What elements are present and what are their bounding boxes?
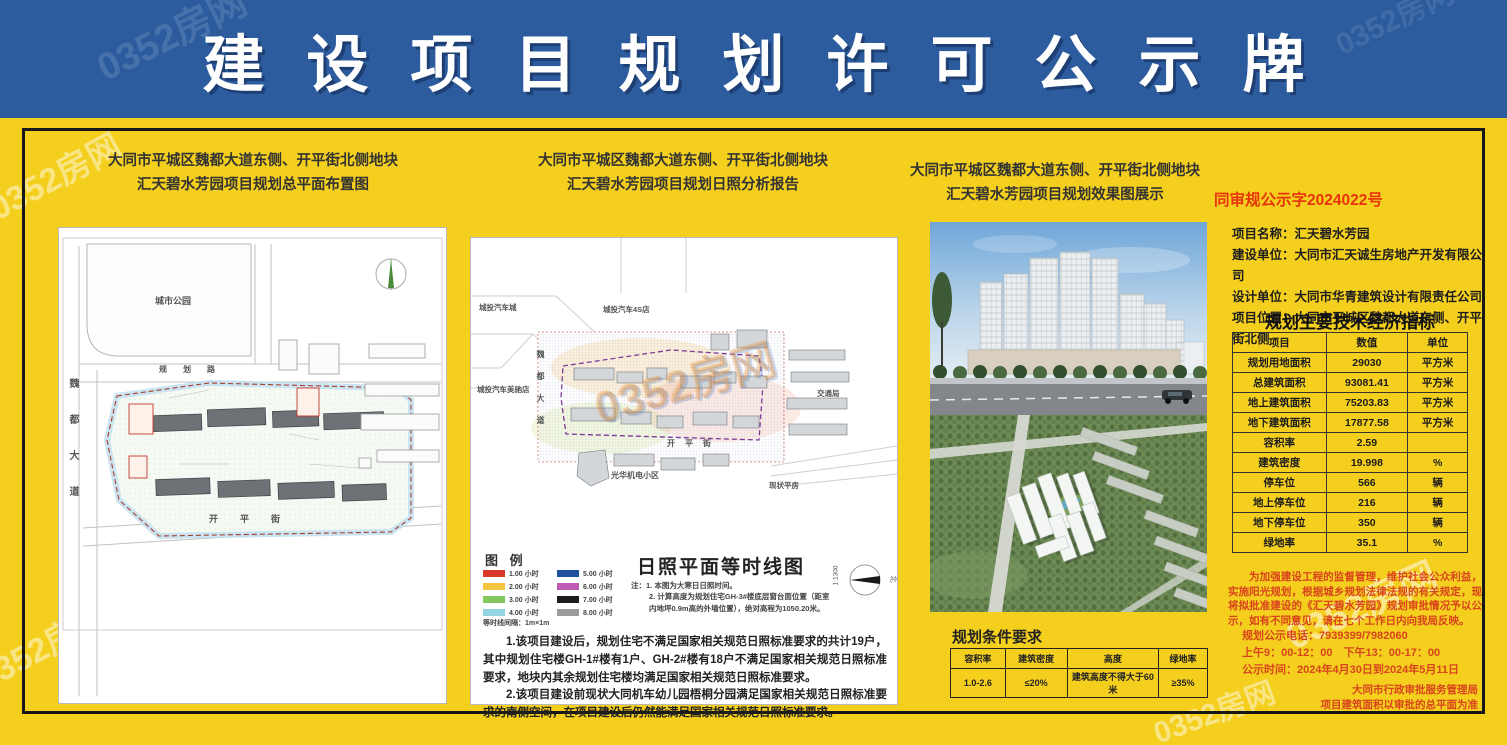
legend-label: 6.00 小时 bbox=[583, 582, 613, 592]
approval-doc-number: 同审规公示字2024022号 bbox=[1214, 188, 1484, 210]
project-info-row: 建设单位：大同市汇天诚生房地产开发有限公司 bbox=[1232, 245, 1488, 287]
legend-swatch bbox=[483, 570, 505, 577]
watermark-text: 0352房网 bbox=[1327, 0, 1460, 64]
legend-swatch bbox=[483, 583, 505, 590]
notice-footnote: 项目建筑面积以审批的总平面为准 bbox=[1228, 698, 1478, 713]
notice-paragraph: 为加强建设工程的监督管理，维护社会公众利益，实施阳光规划，根据城乡规划法律法规的… bbox=[1228, 570, 1482, 628]
indicator-name: 建筑密度 bbox=[1233, 453, 1327, 473]
indicator-row: 总建筑面积93081.41平方米 bbox=[1233, 373, 1468, 393]
legend-label: 7.00 小时 bbox=[583, 595, 613, 605]
analysis-conclusions: 1.该项目建设后，规划住宅不满足国家相关规范日照标准要求的共计19户，其中规划住… bbox=[471, 630, 899, 706]
conditions-cell: 建筑高度不得大于60米 bbox=[1067, 669, 1159, 698]
indicator-unit bbox=[1408, 433, 1468, 453]
legend-swatch bbox=[557, 583, 579, 590]
indicator-name: 规划用地面积 bbox=[1233, 353, 1327, 373]
notice-board: 0352房网 0352房网 建设项目规划许可公示牌 0352房网 0352房网 … bbox=[0, 0, 1507, 745]
rendering-aerial-view-image bbox=[930, 415, 1207, 612]
scale-compass: 1:1300 北 bbox=[843, 558, 887, 602]
park-label: 城市公园 bbox=[155, 294, 191, 307]
rendering-street-view bbox=[930, 222, 1207, 415]
indicator-value: 19.998 bbox=[1326, 453, 1408, 473]
conditions-header-row: 容积率 建筑密度 高度 绿地率 bbox=[951, 649, 1208, 669]
indicator-row: 地下建筑面积17877.58平方米 bbox=[1233, 413, 1468, 433]
conditions-title: 规划条件要求 bbox=[952, 626, 1042, 647]
indicator-name: 停车位 bbox=[1233, 473, 1327, 493]
legend-swatch bbox=[483, 609, 505, 616]
bureau-label: 交通局 bbox=[817, 388, 840, 399]
indicator-value: 75203.83 bbox=[1326, 393, 1408, 413]
legend-label: 5.00 小时 bbox=[583, 569, 613, 579]
indicator-unit: % bbox=[1408, 533, 1468, 553]
legend-row: 图 例 1.00 小时 2.00 小时 3.00 小时 4.00 小时 5.00… bbox=[471, 546, 899, 626]
conditions-header: 建筑密度 bbox=[1005, 649, 1067, 669]
road-bottom-label: 开平街 bbox=[209, 512, 302, 525]
indicator-row: 停车位566辆 bbox=[1233, 473, 1468, 493]
legend-item: 5.00 小时 bbox=[557, 568, 623, 579]
indicator-name: 地下建筑面积 bbox=[1233, 413, 1327, 433]
indicator-unit: 辆 bbox=[1408, 473, 1468, 493]
right-panel-title: 大同市平城区魏都大道东侧、开平街北侧地块 汇天碧水芳园项目规划效果图展示 bbox=[902, 160, 1208, 208]
middle-panel-title: 大同市平城区魏都大道东侧、开平街北侧地块 汇天碧水芳园项目规划日照分析报告 bbox=[468, 150, 898, 198]
indicators-table: 项目 数值 单位 规划用地面积29030平方米 总建筑面积93081.41平方米… bbox=[1232, 332, 1468, 553]
road-bottom-label: 开平街 bbox=[667, 438, 721, 449]
legend-swatch bbox=[557, 609, 579, 616]
conditions-header: 绿地率 bbox=[1159, 649, 1208, 669]
conditions-value-row: 1.0-2.6 ≤20% 建筑高度不得大于60米 ≥35% bbox=[951, 669, 1208, 698]
houses-label: 现状平房 bbox=[769, 480, 799, 491]
legend-label: 1.00 小时 bbox=[509, 569, 539, 579]
indicator-name: 地上停车位 bbox=[1233, 493, 1327, 513]
right-title-line2: 汇天碧水芳园项目规划效果图展示 bbox=[902, 184, 1208, 208]
indicator-unit: 辆 bbox=[1408, 513, 1468, 533]
left-title-line1: 大同市平城区魏都大道东侧、开平街北侧地块 bbox=[58, 150, 448, 174]
indicators-header: 数值 bbox=[1326, 333, 1408, 353]
auto-shop-label: 城投汽车美驰店 bbox=[477, 384, 530, 395]
indicator-row: 规划用地面积29030平方米 bbox=[1233, 353, 1468, 373]
indicator-value: 2.59 bbox=[1326, 433, 1408, 453]
middle-title-line1: 大同市平城区魏都大道东侧、开平街北侧地块 bbox=[468, 150, 898, 174]
isoline-diagram-title: 日照平面等时线图 bbox=[631, 552, 811, 579]
indicators-header: 单位 bbox=[1408, 333, 1468, 353]
info-label: 建设单位： bbox=[1232, 248, 1295, 262]
conditions-table: 容积率 建筑密度 高度 绿地率 1.0-2.6 ≤20% 建筑高度不得大于60米… bbox=[950, 648, 1208, 698]
scale-label: 1:1300 bbox=[832, 566, 839, 586]
site-plan-card: 城市公园 规划路 魏都大道 开平街 bbox=[58, 227, 447, 704]
info-value: 汇天碧水芳园 bbox=[1295, 227, 1370, 241]
legend-swatch bbox=[483, 596, 505, 603]
indicator-row: 地上建筑面积75203.83平方米 bbox=[1233, 393, 1468, 413]
legend-label: 4.00 小时 bbox=[509, 608, 539, 618]
indicator-value: 17877.58 bbox=[1326, 413, 1408, 433]
indicator-name: 地上建筑面积 bbox=[1233, 393, 1327, 413]
indicator-value: 35.1 bbox=[1326, 533, 1408, 553]
indicator-row: 地上停车位216辆 bbox=[1233, 493, 1468, 513]
indicator-unit: 平方米 bbox=[1408, 413, 1468, 433]
conditions-header: 容积率 bbox=[951, 649, 1006, 669]
indicator-name: 容积率 bbox=[1233, 433, 1327, 453]
notice-period: 公示时间：2024年4月30日到2024年5月11日 bbox=[1228, 662, 1482, 679]
indicator-unit: 平方米 bbox=[1408, 373, 1468, 393]
left-title-line2: 汇天碧水芳园项目规划总平面布置图 bbox=[58, 174, 448, 198]
legend-swatch bbox=[557, 570, 579, 577]
indicators-header-row: 项目 数值 单位 bbox=[1233, 333, 1468, 353]
project-info-row: 项目名称：汇天碧水芳园 bbox=[1232, 224, 1488, 245]
right-title-line1: 大同市平城区魏都大道东侧、开平街北侧地块 bbox=[902, 160, 1208, 184]
site-plan-drawing bbox=[59, 228, 446, 703]
indicator-name: 绿地率 bbox=[1233, 533, 1327, 553]
notice-phone: 规划公示电话：7939399/7982060 bbox=[1228, 628, 1482, 645]
auto-4s-label: 城投汽车4S店 bbox=[603, 304, 650, 315]
indicator-row: 地下停车位350辆 bbox=[1233, 513, 1468, 533]
notice-hours: 上午9：00-12：00 下午13：00-17：00 bbox=[1228, 645, 1482, 662]
board-header: 0352房网 0352房网 建设项目规划许可公示牌 bbox=[0, 0, 1507, 118]
indicator-unit: 辆 bbox=[1408, 493, 1468, 513]
diagram-note-1: 注：1. 本图为大寒日日照时间。 bbox=[631, 580, 831, 591]
indicator-value: 29030 bbox=[1326, 353, 1408, 373]
indicator-row: 容积率2.59 bbox=[1233, 433, 1468, 453]
conditions-cell: 1.0-2.6 bbox=[951, 669, 1006, 698]
legend-items: 1.00 小时 2.00 小时 3.00 小时 4.00 小时 5.00 小时 … bbox=[483, 568, 623, 618]
legend-swatch bbox=[557, 596, 579, 603]
legend-item: 6.00 小时 bbox=[557, 581, 623, 592]
middle-title-line2: 汇天碧水芳园项目规划日照分析报告 bbox=[468, 174, 898, 198]
indicator-unit: % bbox=[1408, 453, 1468, 473]
analysis-grid bbox=[531, 332, 801, 462]
rendering-street-view-image bbox=[930, 222, 1207, 415]
north-label: 北 bbox=[889, 576, 899, 583]
indicator-name: 地下停车位 bbox=[1233, 513, 1327, 533]
north-compass-icon bbox=[376, 259, 406, 290]
indicator-row: 绿地率35.1% bbox=[1233, 533, 1468, 553]
info-value: 大同市华青建筑设计有限责任公司 bbox=[1295, 290, 1483, 304]
legend-item: 3.00 小时 bbox=[483, 594, 549, 605]
board-title: 建设项目规划许可公示牌 bbox=[160, 14, 1346, 104]
conditions-header: 高度 bbox=[1067, 649, 1159, 669]
legend-item: 1.00 小时 bbox=[483, 568, 549, 579]
indicator-unit: 平方米 bbox=[1408, 393, 1468, 413]
legend-label: 2.00 小时 bbox=[509, 582, 539, 592]
legend-item: 2.00 小时 bbox=[483, 581, 549, 592]
legend-note: 等时线间隔：1m×1m bbox=[483, 618, 549, 628]
public-notice: 为加强建设工程的监督管理，维护社会公众利益，实施阳光规划，根据城乡规划法律法规的… bbox=[1228, 570, 1482, 713]
road-left-label: 魏都大道 bbox=[535, 350, 546, 438]
rendering-aerial-view bbox=[930, 415, 1207, 612]
indicator-row: 建筑密度19.998% bbox=[1233, 453, 1468, 473]
auto-city-label: 城投汽车城 bbox=[479, 302, 517, 313]
left-panel-title: 大同市平城区魏都大道东侧、开平街北侧地块 汇天碧水芳园项目规划总平面布置图 bbox=[58, 150, 448, 198]
sunlight-analysis-card: 城投汽车城 城投汽车4S店 城投汽车美驰店 魏都大道 开平街 光华机电小区 交通… bbox=[470, 237, 898, 705]
indicator-value: 93081.41 bbox=[1326, 373, 1408, 393]
conclusion-2: 2.该项目建设前现状大同机车幼儿园梧桐分园满足国家相关规范日照标准要求的南侧空间… bbox=[483, 687, 887, 723]
indicator-value: 566 bbox=[1326, 473, 1408, 493]
legend-item: 8.00 小时 bbox=[557, 607, 623, 618]
isoline-diagram-notes: 注：1. 本图为大寒日日照时间。 2. 计算高度为规划住宅GH-3#楼底层窗台面… bbox=[631, 580, 831, 614]
indicator-name: 总建筑面积 bbox=[1233, 373, 1327, 393]
legend-item: 4.00 小时 bbox=[483, 607, 549, 618]
road-left-label: 魏都大道 bbox=[65, 378, 80, 522]
indicators-title: 规划主要技术经济指标 bbox=[1230, 308, 1470, 333]
legend-title: 图 例 bbox=[485, 550, 527, 569]
info-label: 项目名称： bbox=[1232, 227, 1295, 241]
conclusion-1: 1.该项目建设后，规划住宅不满足国家相关规范日照标准要求的共计19户，其中规划住… bbox=[483, 634, 887, 687]
legend-label: 3.00 小时 bbox=[509, 595, 539, 605]
legend-item: 7.00 小时 bbox=[557, 594, 623, 605]
estate-label: 光华机电小区 bbox=[611, 470, 659, 481]
conditions-cell: ≤20% bbox=[1005, 669, 1067, 698]
road-top-label: 规划路 bbox=[159, 364, 231, 375]
project-info-row: 设计单位：大同市华青建筑设计有限责任公司 bbox=[1232, 287, 1488, 308]
compass-icon bbox=[843, 558, 887, 602]
diagram-note-2: 2. 计算高度为规划住宅GH-3#楼底层窗台面位置（距室内地坪0.9m高的外墙位… bbox=[631, 591, 831, 614]
indicator-value: 216 bbox=[1326, 493, 1408, 513]
conditions-cell: ≥35% bbox=[1159, 669, 1208, 698]
indicator-unit: 平方米 bbox=[1408, 353, 1468, 373]
legend-label: 8.00 小时 bbox=[583, 608, 613, 618]
info-label: 设计单位： bbox=[1232, 290, 1295, 304]
indicators-header: 项目 bbox=[1233, 333, 1327, 353]
indicator-value: 350 bbox=[1326, 513, 1408, 533]
notice-agency: 大同市行政审批服务管理局 bbox=[1228, 683, 1478, 698]
